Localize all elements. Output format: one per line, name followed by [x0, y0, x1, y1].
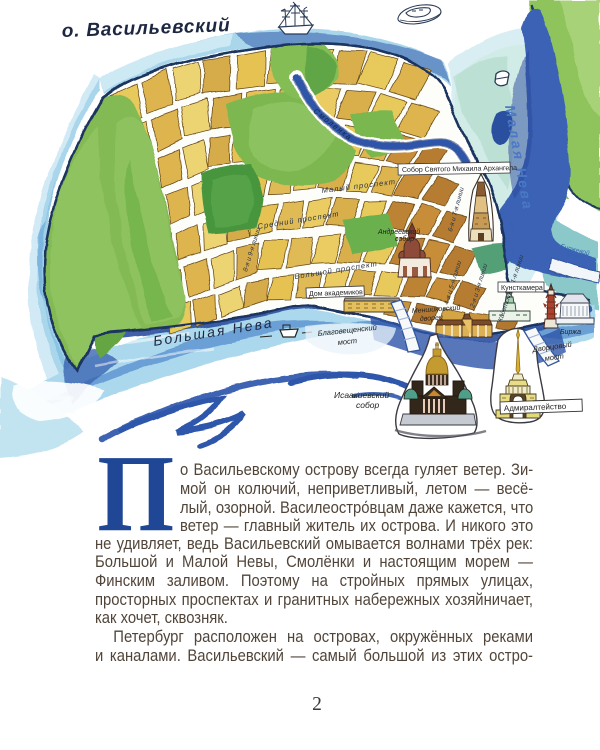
svg-text:Биржа: Биржа: [560, 329, 581, 336]
svg-text:Андреевский: Андреевский: [377, 228, 420, 236]
svg-text:о. Васильевский: о. Васильевский: [61, 15, 230, 42]
svg-text:собор: собор: [395, 235, 414, 243]
svg-text:Кунсткамера: Кунсткамера: [501, 285, 543, 292]
svg-text:собор: собор: [356, 400, 379, 410]
svg-text:дворец: дворец: [420, 313, 444, 323]
svg-text:Исаакиевский: Исаакиевский: [334, 390, 389, 400]
svg-text:мост: мост: [544, 351, 564, 363]
svg-text:П: П: [97, 445, 174, 545]
